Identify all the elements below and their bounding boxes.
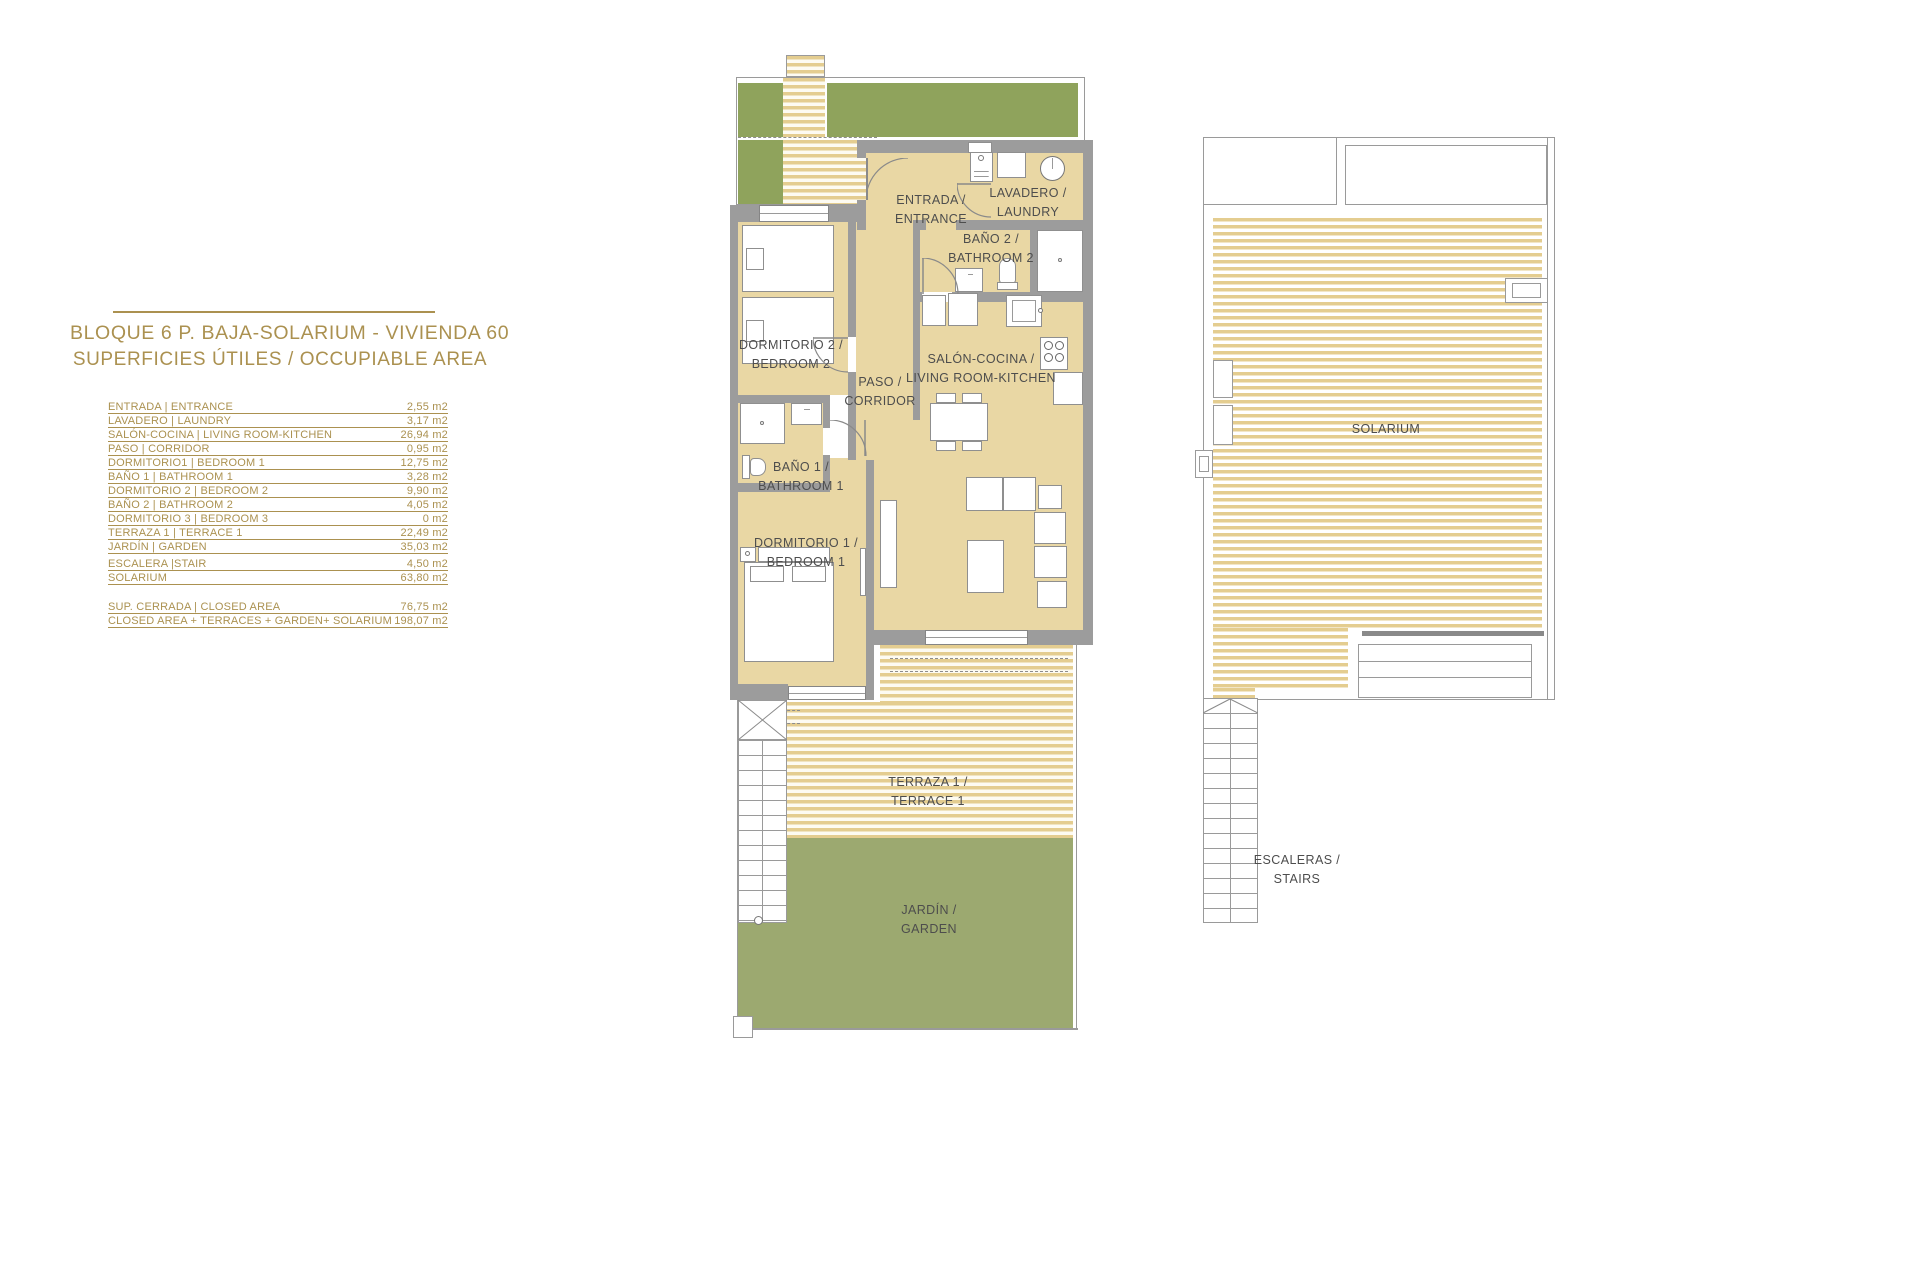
solarium-vent-inner [1512,283,1541,298]
solarium-stairs [1203,698,1258,923]
solarium-inner-right-line [1547,137,1548,700]
solarium-open-top-left [1203,137,1337,205]
solarium-bench [1358,644,1532,698]
solarium-deck-lower [1213,628,1348,688]
solarium-protrusion-inner [1199,456,1209,472]
floor-plan-page: BLOQUE 6 P. BAJA-SOLARIUM - VIVIENDA 60 … [0,0,1920,1280]
solarium-plan: SOLARIUM ESCALERAS /STAIRS [0,0,1920,1280]
bench-slat-line [1359,677,1531,678]
stairs-label: ESCALERAS /STAIRS [1254,851,1340,890]
bench-slat-line [1359,661,1531,662]
solarium-left-box [1213,360,1233,398]
solarium-deck-step [1213,688,1255,698]
solarium-left-box [1213,405,1233,445]
solarium-open-top-right [1345,145,1547,205]
stairs-arrow-icon [1203,698,1258,714]
solarium-pergola-bar [1362,631,1544,636]
solarium-label: SOLARIUM [1352,420,1421,439]
